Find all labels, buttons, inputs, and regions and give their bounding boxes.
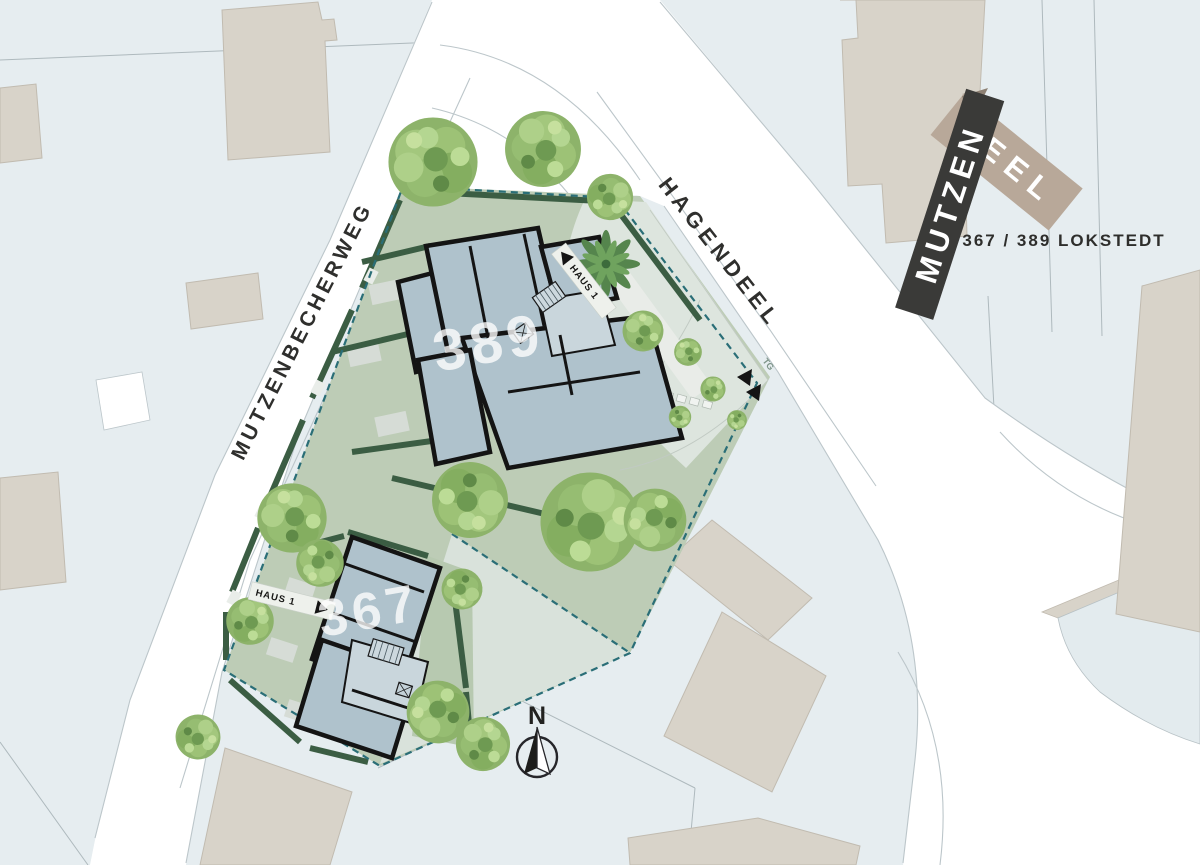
neighbor-driveway (96, 372, 150, 430)
neighbor-building (0, 472, 66, 590)
neighbor-building (186, 273, 263, 329)
neighbor-building (0, 84, 42, 163)
neighbor-building (222, 2, 337, 160)
compass-north-label: N (528, 702, 546, 730)
tree (388, 117, 477, 206)
shrub (674, 338, 702, 366)
logo-subtitle: 367 / 389 LOKSTEDT (962, 231, 1165, 250)
site-plan-map: TG HAUS 1 HAUS 1 389 367 MUTZENBECHERWEG… (0, 0, 1200, 865)
tree (226, 597, 274, 645)
